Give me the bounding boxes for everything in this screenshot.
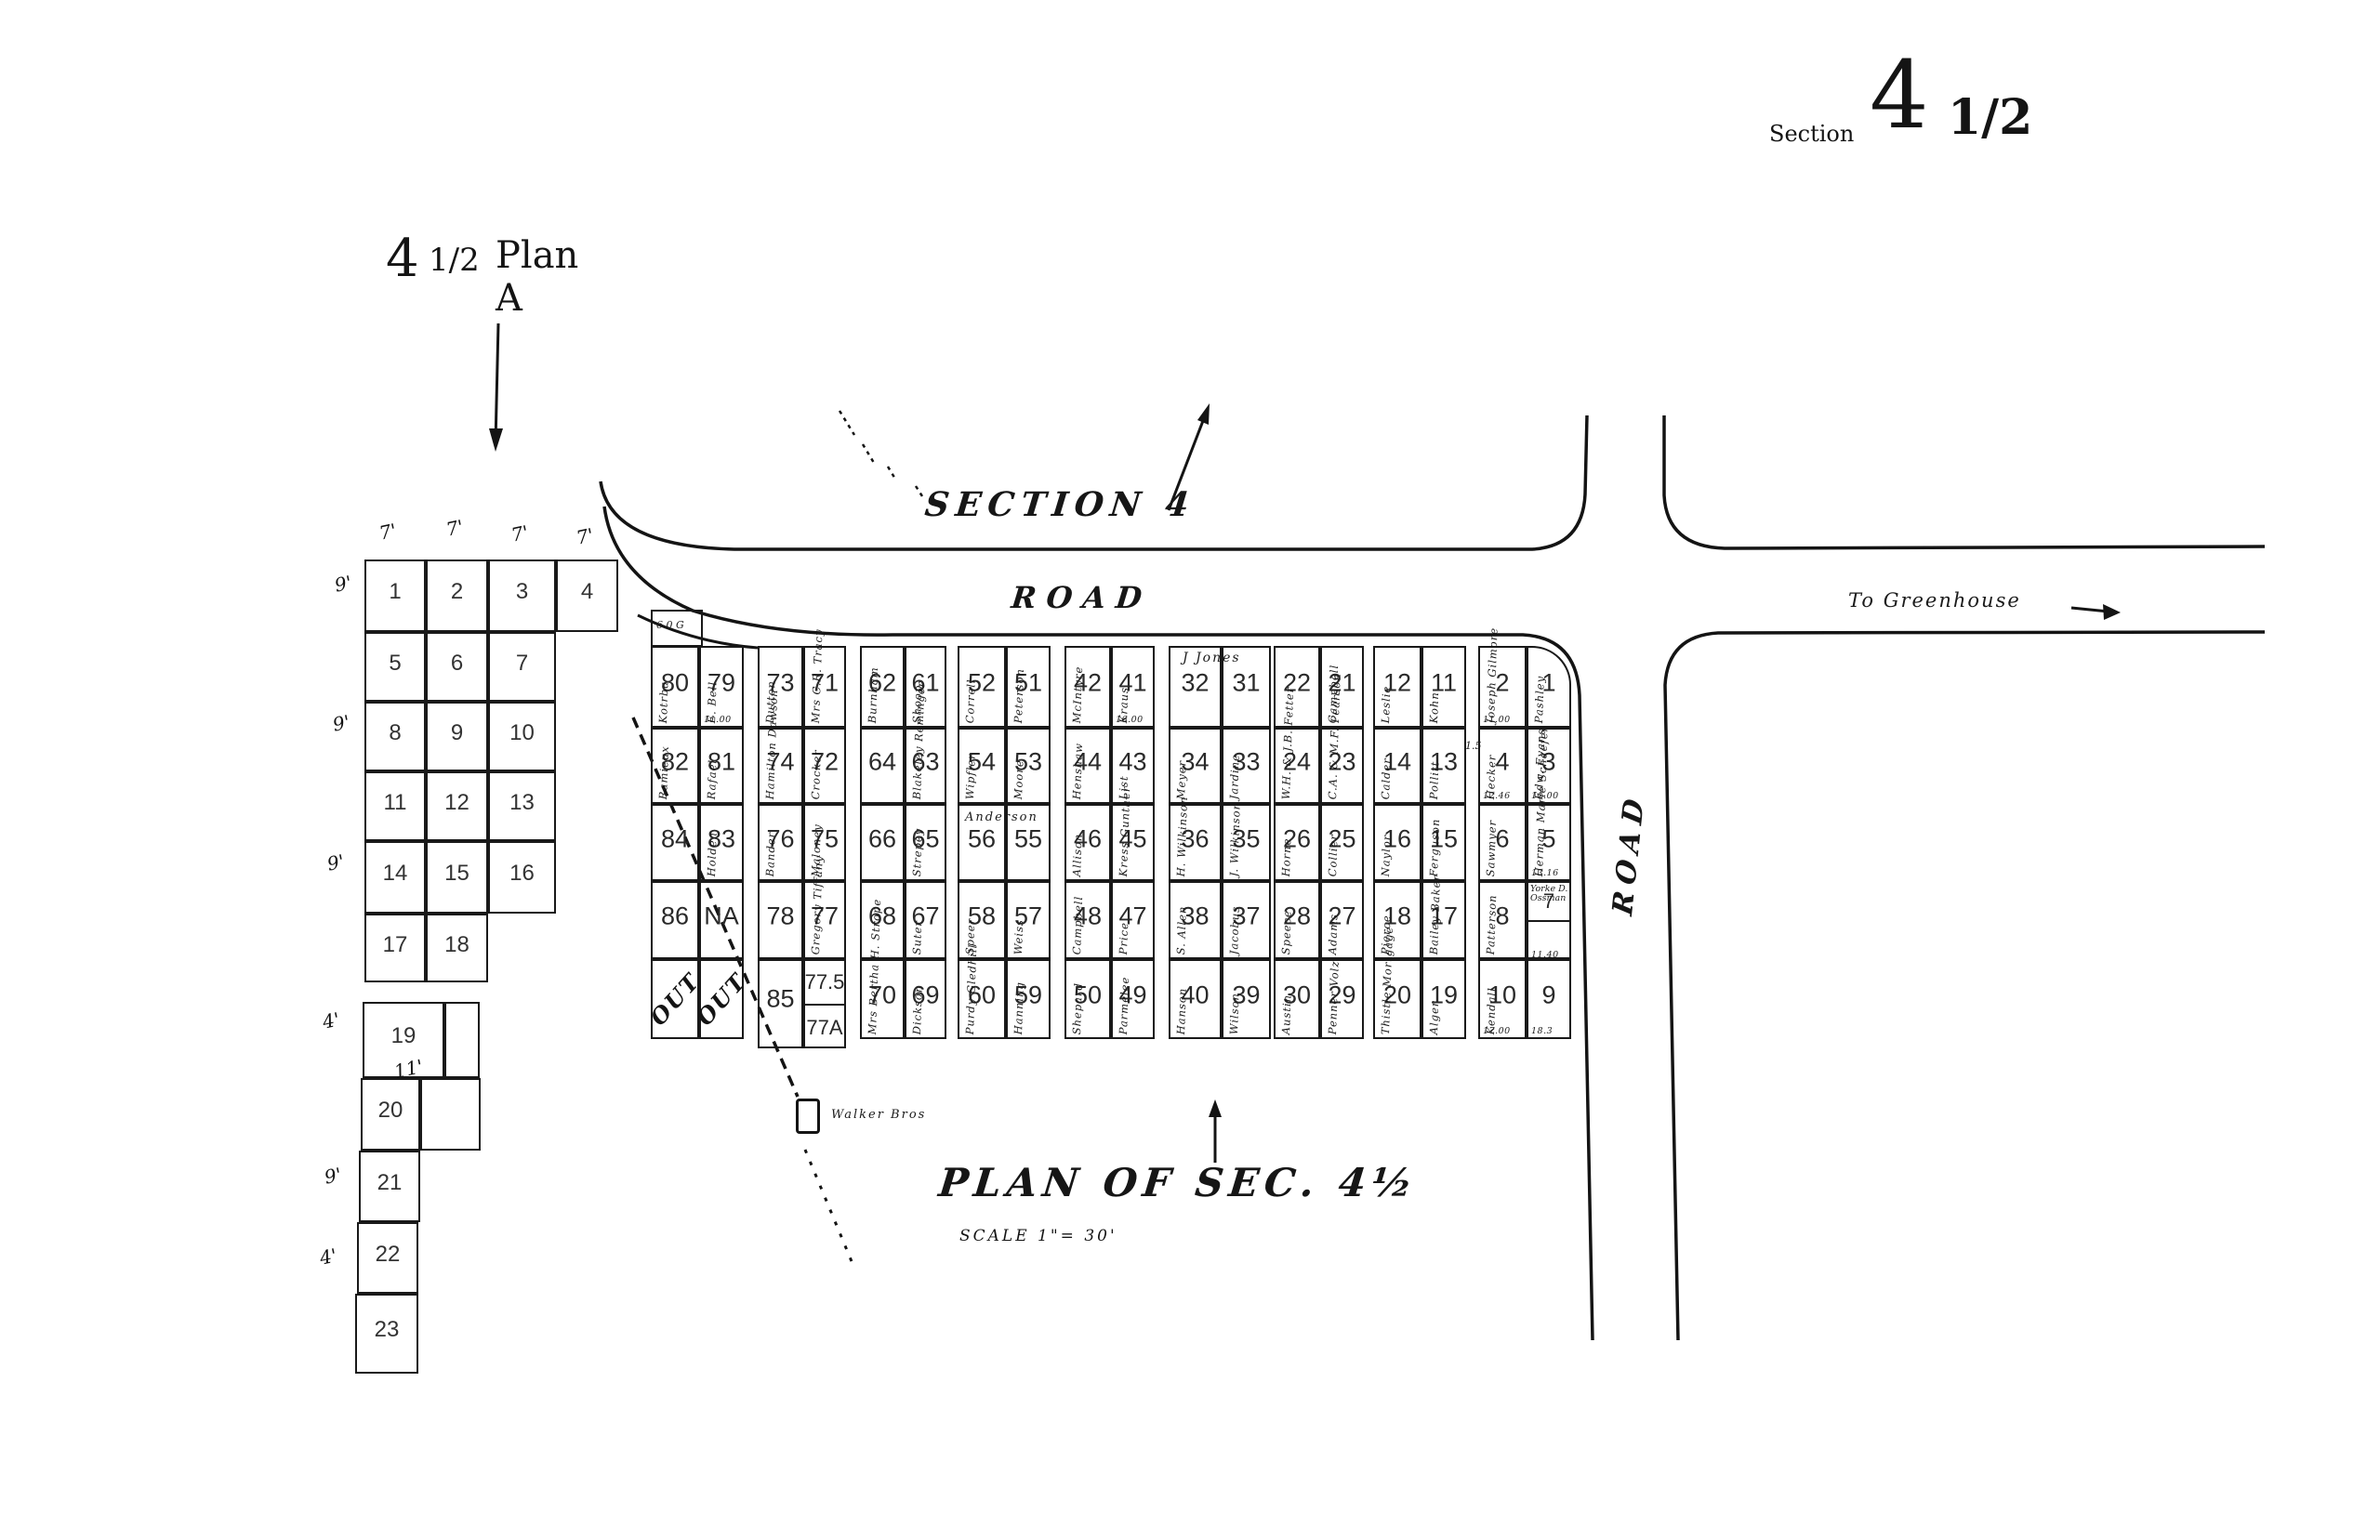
plot-number: 23	[375, 1317, 400, 1343]
plot-number: 2	[451, 579, 463, 605]
plot-cell-41: 41Kraus16.00	[1111, 646, 1155, 728]
plot-cell-20: 20Thistle Mortgage	[1373, 959, 1421, 1039]
plan-a-cell-blank	[420, 1078, 481, 1151]
owner-name: Austin	[1279, 964, 1295, 1034]
fee-amount: 12.46	[1483, 791, 1511, 801]
plot-cell-78: 78	[758, 881, 803, 959]
owner-name: Hamilton Dawson	[763, 732, 779, 799]
plot-cell-67: 67Suter	[905, 881, 946, 959]
owner-name: W.H. & J.B. Fetter	[1279, 732, 1295, 799]
owner-name: H. Wilkinson	[1174, 809, 1190, 876]
plot-number: 12	[444, 790, 469, 816]
plot-cell-OUT: OUT	[699, 959, 744, 1039]
owner-name: Joseph Gilmore	[1484, 651, 1500, 723]
plot-cell-4: 4Hecker12.46	[1478, 728, 1527, 804]
plot-number: 78	[766, 902, 794, 931]
plot-cell-43: 43List	[1111, 728, 1155, 804]
plot-cell-53: 53Moore	[1006, 728, 1051, 804]
plot-cell-27: 27Adams	[1320, 881, 1364, 959]
owner-name: Shepard	[1070, 964, 1086, 1034]
owner-name: Adams	[1326, 886, 1342, 954]
plot-cell-42: 42McIntyre	[1064, 646, 1111, 728]
out-label: OUT	[644, 967, 706, 1031]
plot-cell-54: 54Wipfler	[958, 728, 1006, 804]
plot-cell-5: 5Herman Marie Schaefer13.16	[1527, 804, 1571, 881]
plot-cell-24: 24W.H. & J.B. Fetter	[1274, 728, 1320, 804]
plot-number: 56	[968, 824, 996, 853]
plot-cell-58: 58Speer	[958, 881, 1006, 959]
plot-cell-69: 69Dickson	[905, 959, 946, 1039]
plot-cell-48: 48Campbell	[1064, 881, 1111, 959]
plot-cell-11: 11Kohn	[1421, 646, 1466, 728]
owner-name: McIntyre	[1070, 651, 1086, 723]
out-label: OUT	[691, 967, 752, 1031]
plot-cell-28: 28Speece	[1274, 881, 1320, 959]
owner-name: Parmelee	[1117, 964, 1132, 1034]
plot-number: 1	[389, 579, 401, 605]
plot-cell-73: 73Dutton	[758, 646, 803, 728]
plot-cell-64: 64	[860, 728, 905, 804]
owner-name: Henshaw	[1070, 732, 1086, 799]
plot-cell-26: 26Horne	[1274, 804, 1320, 881]
plan-a-cell-11: 11	[364, 771, 426, 841]
owner-name: Crocker	[809, 732, 825, 799]
plot-cell-22: 22	[1274, 646, 1320, 728]
owner-name: Suter	[910, 886, 926, 954]
plot-cell-OUT: OUT	[651, 959, 699, 1039]
owner-name: E. Bell	[705, 651, 721, 723]
owner-name: Wilson	[1227, 964, 1243, 1034]
plan-a-cell-5: 5	[364, 632, 426, 702]
plot-cell-13: 13Pollitt	[1421, 728, 1466, 804]
owner-name: Naylor	[1379, 809, 1395, 876]
plan-a-cell-1: 1	[364, 559, 426, 632]
plot-cell-29: 29Penner Volz	[1320, 959, 1364, 1039]
plot-cell-70: 70Mrs Bertha H. Strope	[860, 959, 905, 1039]
plot-cell-50: 50Shepard	[1064, 959, 1111, 1039]
plot-cell-37: 37Jacobus	[1222, 881, 1271, 959]
plot-cell-split: 7Yorke D. Ossman11.40	[1527, 881, 1571, 959]
plot-cell-10: 10Kendall17.00	[1478, 959, 1527, 1039]
plan-a-cell-3: 3	[488, 559, 556, 632]
plan-a-cell-17: 17	[364, 914, 426, 982]
fee-amount: 11.00	[1483, 715, 1511, 725]
plot-cell-split: 77.577A	[803, 959, 846, 1048]
owner-name: Meyer	[1174, 732, 1190, 799]
page-title-fraction: 1/2	[1948, 89, 2032, 146]
annex-cell: 6.0 G	[651, 610, 703, 647]
plot-number: 32	[1181, 668, 1209, 697]
plan-a-cell-2: 2	[426, 559, 488, 632]
plot-number: 10	[509, 720, 535, 746]
plot-cell-NA: NA	[699, 881, 744, 959]
plot-cell-71: 71Mrs C.R. Tracy	[803, 646, 846, 728]
plot-number: 8	[389, 720, 401, 746]
plot-cell-63: 63Blakeley Reminger	[905, 728, 946, 804]
owner-name: Sawmyer	[1484, 809, 1500, 876]
owner-name: C.A. & M.F. Pearson	[1326, 732, 1342, 799]
greenhouse-road-upper-edge	[1664, 415, 2265, 548]
owner-name: Alger	[1427, 964, 1443, 1034]
owner-name: S. Allen	[1174, 886, 1190, 954]
plot-cell-33: 33Jardine	[1222, 728, 1271, 804]
fee-amount: 13.16	[1531, 868, 1559, 878]
plot-cell-15: 15Ferguson	[1421, 804, 1466, 881]
plan-a-cell-23: 23	[355, 1294, 418, 1374]
greenhouse-arrowhead	[2103, 604, 2121, 620]
annex-label: 6.0 G	[656, 619, 684, 631]
plan-a-heading-name: Plan A	[496, 234, 578, 320]
plot-cell-2: 2Joseph Gilmore11.00	[1478, 646, 1527, 728]
fee-amount: 18.3	[1531, 1026, 1553, 1036]
owner-name: Pollitt	[1427, 732, 1443, 799]
plot-cell-19: 19Alger	[1421, 959, 1466, 1039]
plot-cell-39: 39Wilson	[1222, 959, 1271, 1039]
plot-cell-80: 80Kotrba	[651, 646, 699, 728]
road-top-label: ROAD	[1010, 580, 1154, 615]
owner-name: Penner Volz	[1326, 964, 1342, 1034]
plot-subcell-7: 7Yorke D. Ossman	[1528, 883, 1569, 922]
plan-a-arrow	[496, 323, 498, 443]
plan-a-cell-20: 20	[361, 1078, 420, 1151]
plot-number: 11	[384, 790, 407, 816]
plat-map-page: Section 4 1/2 4 1/2 Plan A SECTION 4 ROA…	[0, 0, 2380, 1540]
plot-cell-12: 12Leslie	[1373, 646, 1421, 728]
plot-cell-79: 79E. Bell11.00	[699, 646, 744, 728]
plot-number: 22	[376, 1242, 401, 1268]
plot-number: 4	[581, 579, 593, 605]
plot-cell-60: 60Purdy Gledhill	[958, 959, 1006, 1039]
plan-a-cell-9: 9	[426, 702, 488, 771]
owner-name: Moore	[1011, 732, 1027, 799]
plot-cell-14: 14Calder	[1373, 728, 1421, 804]
plot-number: 14	[383, 861, 408, 887]
plot-cell-74: 74Hamilton Dawson	[758, 728, 803, 804]
plot-cell-59: 59Hanning	[1006, 959, 1051, 1039]
plot-cell-16: 16Naylor	[1373, 804, 1421, 881]
owner-name: Bander	[763, 809, 779, 876]
owner-name: Ramieux	[656, 732, 672, 799]
plan-a-cell-21: 21	[359, 1151, 420, 1222]
plot-cell-36: 36H. Wilkinson	[1169, 804, 1222, 881]
plot-cell-32: 32	[1169, 646, 1222, 728]
plot-number: 77.5	[805, 970, 845, 994]
plan-scale: SCALE 1"= 30'	[959, 1227, 1117, 1245]
owner-name: Hecker	[1484, 732, 1500, 799]
plan-a-cell-4: 4	[556, 559, 618, 632]
plot-cell-17: 17Bailey Baker	[1421, 881, 1466, 959]
owner-name: Leslie	[1379, 651, 1395, 723]
owner-name: Correll	[963, 651, 979, 723]
plot-number: 9	[451, 720, 463, 746]
owner-name: Hanning	[1011, 964, 1027, 1034]
road-upper-edge	[601, 415, 1587, 549]
plot-number: 18	[444, 932, 469, 958]
owner-name: Purdy Gledhill	[963, 964, 979, 1034]
owner-name: Burnham	[866, 651, 881, 723]
owner-name: Hanson	[1174, 964, 1190, 1034]
plot-cell-62: 62Burnham	[860, 646, 905, 728]
page-title-word: Section	[1769, 121, 1854, 147]
owner-name: Gregory Tiffany	[809, 886, 825, 954]
plan-a-cell-10: 10	[488, 702, 556, 771]
plan-a-cell-7: 7	[488, 632, 556, 702]
owner-name: Herman Marie Schaefer	[1532, 809, 1548, 876]
plan-title: PLAN OF SEC. 4½	[936, 1160, 1420, 1205]
owner-name: Yorke D. Ossman	[1530, 885, 1571, 902]
plot-cell-34: 34Meyer	[1169, 728, 1222, 804]
plan-a-cell-12: 12	[426, 771, 488, 841]
plot-number: 55	[1014, 824, 1042, 853]
owner-name: Campbell	[1070, 886, 1086, 954]
plot-number: 13	[509, 790, 535, 816]
plot-cell-30: 30Austin	[1274, 959, 1320, 1039]
plot-subcell-77.5: 77.5	[805, 961, 844, 1006]
reference-square-label: Walker Bros	[831, 1108, 926, 1122]
plot-number: NA	[704, 902, 739, 931]
plot-cell-31: 31	[1222, 646, 1271, 728]
owner-name: Collier	[1326, 809, 1342, 876]
plot-number: 19	[391, 1023, 416, 1049]
owner-name: Price	[1117, 886, 1132, 954]
plot-cell-38: 38S. Allen	[1169, 881, 1222, 959]
plot-cell-44: 44Henshaw	[1064, 728, 1111, 804]
plot-number: 77A	[806, 1016, 842, 1040]
owner-name: Kendall	[1484, 964, 1500, 1034]
plan-a-cell-22: 22	[357, 1222, 418, 1294]
owner-name: Jacobus	[1227, 886, 1243, 954]
plot-number: 66	[868, 824, 896, 853]
plot-cell-40: 40Hanson	[1169, 959, 1222, 1039]
plot-cell-46: 46Allison	[1064, 804, 1111, 881]
plot-cell-49: 49Parmelee	[1111, 959, 1155, 1039]
owner-name: Strepey	[910, 809, 926, 876]
owner-name: Jardine	[1227, 732, 1243, 799]
plan-a-cell-8: 8	[364, 702, 426, 771]
plan-a-heading-number: 4	[386, 229, 419, 289]
plot-cell-23: 23C.A. & M.F. Pearson	[1320, 728, 1364, 804]
owner-name: Peterson	[1011, 651, 1027, 723]
section-4-arrowhead	[1197, 403, 1210, 425]
north-arrowhead	[1209, 1099, 1222, 1117]
owner-name: Thistle Mortgage	[1379, 964, 1395, 1034]
fee-amount: 16.00	[1116, 715, 1144, 725]
page-title-number: 4	[1870, 54, 1929, 138]
plot-number: 15	[444, 861, 469, 887]
plot-cell-6: 6Sawmyer	[1478, 804, 1527, 881]
plot-cell-85: 85	[758, 959, 803, 1048]
owner-name: Kraus	[1117, 651, 1132, 723]
plan-a-cell-16: 16	[488, 841, 556, 914]
plan-a-cell-blank	[444, 1002, 480, 1078]
plot-cell-55: 55	[1006, 804, 1051, 881]
plot-cell-65: 65Strepey	[905, 804, 946, 881]
plan-a-heading-fraction: 1/2	[429, 242, 480, 279]
plan-a-arrowhead	[489, 428, 503, 452]
plan-a-cell-14: 14	[364, 841, 426, 914]
plot-cell-18: 18Pierce	[1373, 881, 1421, 959]
reference-square-symbol	[796, 1099, 820, 1134]
plot-number: 21	[377, 1170, 403, 1196]
plan-a-cell-6: 6	[426, 632, 488, 702]
plot-number: 86	[661, 902, 689, 931]
plot-number: 20	[378, 1098, 403, 1124]
plot-subcell-77A: 77A	[805, 1006, 844, 1050]
owner-name: Patterson	[1484, 886, 1500, 954]
plan-a-cell-13: 13	[488, 771, 556, 841]
owner-name: Calder	[1379, 732, 1395, 799]
plot-number: 64	[868, 748, 896, 777]
plot-cell-72: 72Crocker	[803, 728, 846, 804]
owner-name: Bailey Baker	[1427, 886, 1443, 954]
plot-cell-77: 77Gregory Tiffany	[803, 881, 846, 959]
owner-name: Ferguson	[1427, 809, 1443, 876]
owner-name: Dickson	[910, 964, 926, 1034]
section-4-label: SECTION 4	[923, 485, 1197, 524]
owner-name: Horne	[1279, 809, 1295, 876]
plot-number: 16	[509, 861, 535, 887]
owner-name: Mrs Bertha H. Strope	[866, 964, 881, 1034]
owner-name: Blakeley Reminger	[910, 732, 926, 799]
plot-cell-76: 76Bander	[758, 804, 803, 881]
plot-cell-81: 81Rafael	[699, 728, 744, 804]
plot-number: 84	[661, 824, 689, 853]
fee-amount: 11.00	[704, 715, 732, 725]
owner-name: J. Wilkinson	[1227, 809, 1243, 876]
scribble-marks	[840, 411, 922, 496]
plot-number: 85	[766, 985, 794, 1014]
owner-name: Allison	[1070, 809, 1086, 876]
plot-number: 3	[516, 579, 528, 605]
greenhouse-road-lower-edge	[1665, 632, 2265, 1340]
owner-name: Kress Gunther	[1117, 809, 1132, 876]
survey-dashed-line-lower	[805, 1150, 853, 1266]
plot-number: 5	[389, 651, 401, 677]
plot-cell-45: 45Kress Gunther	[1111, 804, 1155, 881]
plot-subcell-blank: 11.40	[1528, 922, 1569, 961]
owner-name: Holden	[705, 809, 721, 876]
plot-number: 9	[1541, 981, 1555, 1009]
plot-cell-25: 25Collier	[1320, 804, 1364, 881]
plot-number: 17	[383, 932, 408, 958]
plot-cell-82: 82Ramieux	[651, 728, 699, 804]
plan-a-cell-15: 15	[426, 841, 488, 914]
plot-cell-52: 52Correll	[958, 646, 1006, 728]
plot-cell-47: 47Price	[1111, 881, 1155, 959]
plot-cell-9: 918.3	[1527, 959, 1571, 1039]
plot-cell-83: 83Holden	[699, 804, 744, 881]
plot-cell-57: 57Weiss	[1006, 881, 1051, 959]
owner-name: Kohn	[1427, 651, 1443, 723]
plot-cell-86: 86	[651, 881, 699, 959]
greenhouse-label: To Greenhouse	[1848, 589, 2021, 612]
plot-cell-84: 84	[651, 804, 699, 881]
owner-name: Pashley	[1532, 651, 1548, 723]
plot-cell-51: 51Peterson	[1006, 646, 1051, 728]
plot-number: 6	[451, 651, 463, 677]
owner-name: Rafael	[705, 732, 721, 799]
owner-name: Kotrba	[656, 651, 672, 723]
plot-number: 31	[1232, 668, 1260, 697]
owner-name: Speece	[1279, 886, 1295, 954]
fee-amount: 17.00	[1483, 1026, 1511, 1036]
plan-a-cell-18: 18	[426, 914, 488, 982]
owner-name: Weiss	[1011, 886, 1027, 954]
greenhouse-arrow	[2071, 608, 2109, 612]
plot-cell-35: 35J. Wilkinson	[1222, 804, 1271, 881]
plot-cell-8: 8Patterson	[1478, 881, 1527, 959]
plot-cell-56: 56	[958, 804, 1006, 881]
plot-number: 7	[516, 651, 528, 677]
plot-cell-66: 66	[860, 804, 905, 881]
owner-name: Mrs C.R. Tracy	[809, 651, 825, 723]
owner-name: Wipfler	[963, 732, 979, 799]
